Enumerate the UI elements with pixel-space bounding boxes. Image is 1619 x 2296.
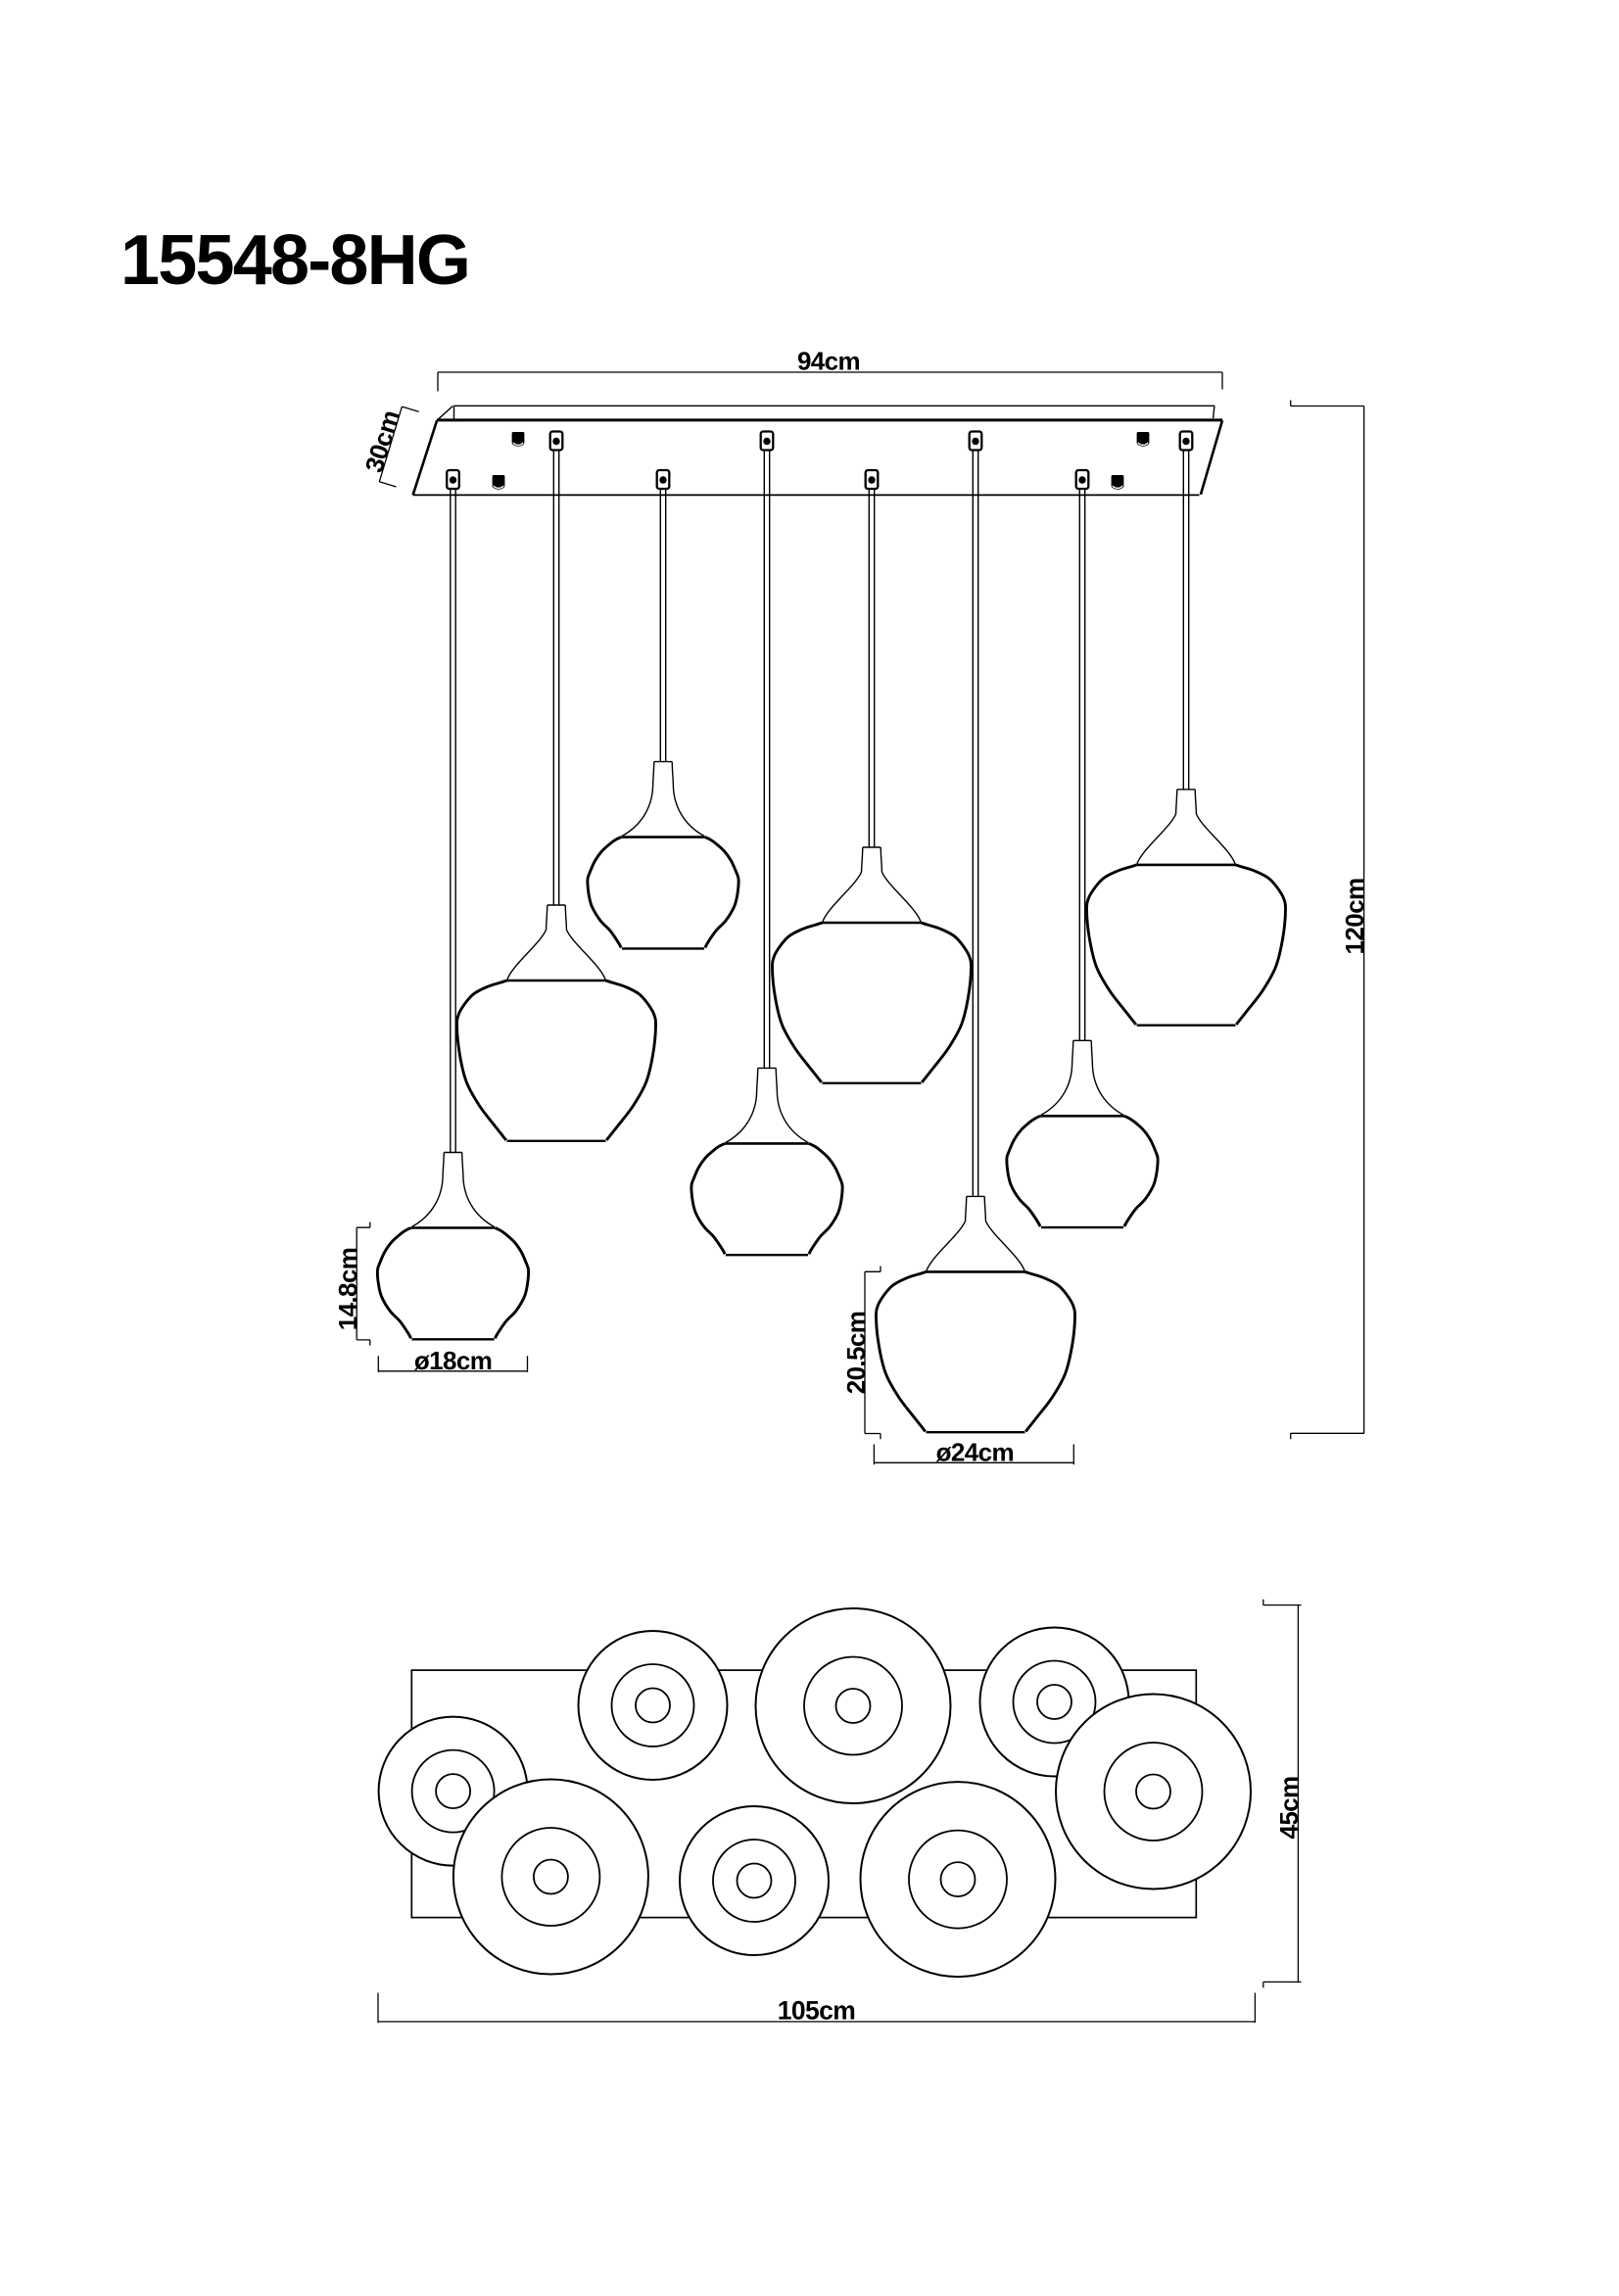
svg-text:120cm: 120cm: [1340, 879, 1369, 955]
svg-text:ø24cm: ø24cm: [936, 1437, 1014, 1466]
svg-text:20.5cm: 20.5cm: [841, 1312, 871, 1395]
svg-text:94cm: 94cm: [797, 347, 860, 376]
svg-text:15548-8HG: 15548-8HG: [120, 221, 469, 300]
svg-text:14.8cm: 14.8cm: [333, 1248, 362, 1331]
svg-text:105cm: 105cm: [778, 1995, 856, 2025]
svg-text:45cm: 45cm: [1274, 1776, 1304, 1839]
svg-text:ø18cm: ø18cm: [414, 1346, 492, 1375]
